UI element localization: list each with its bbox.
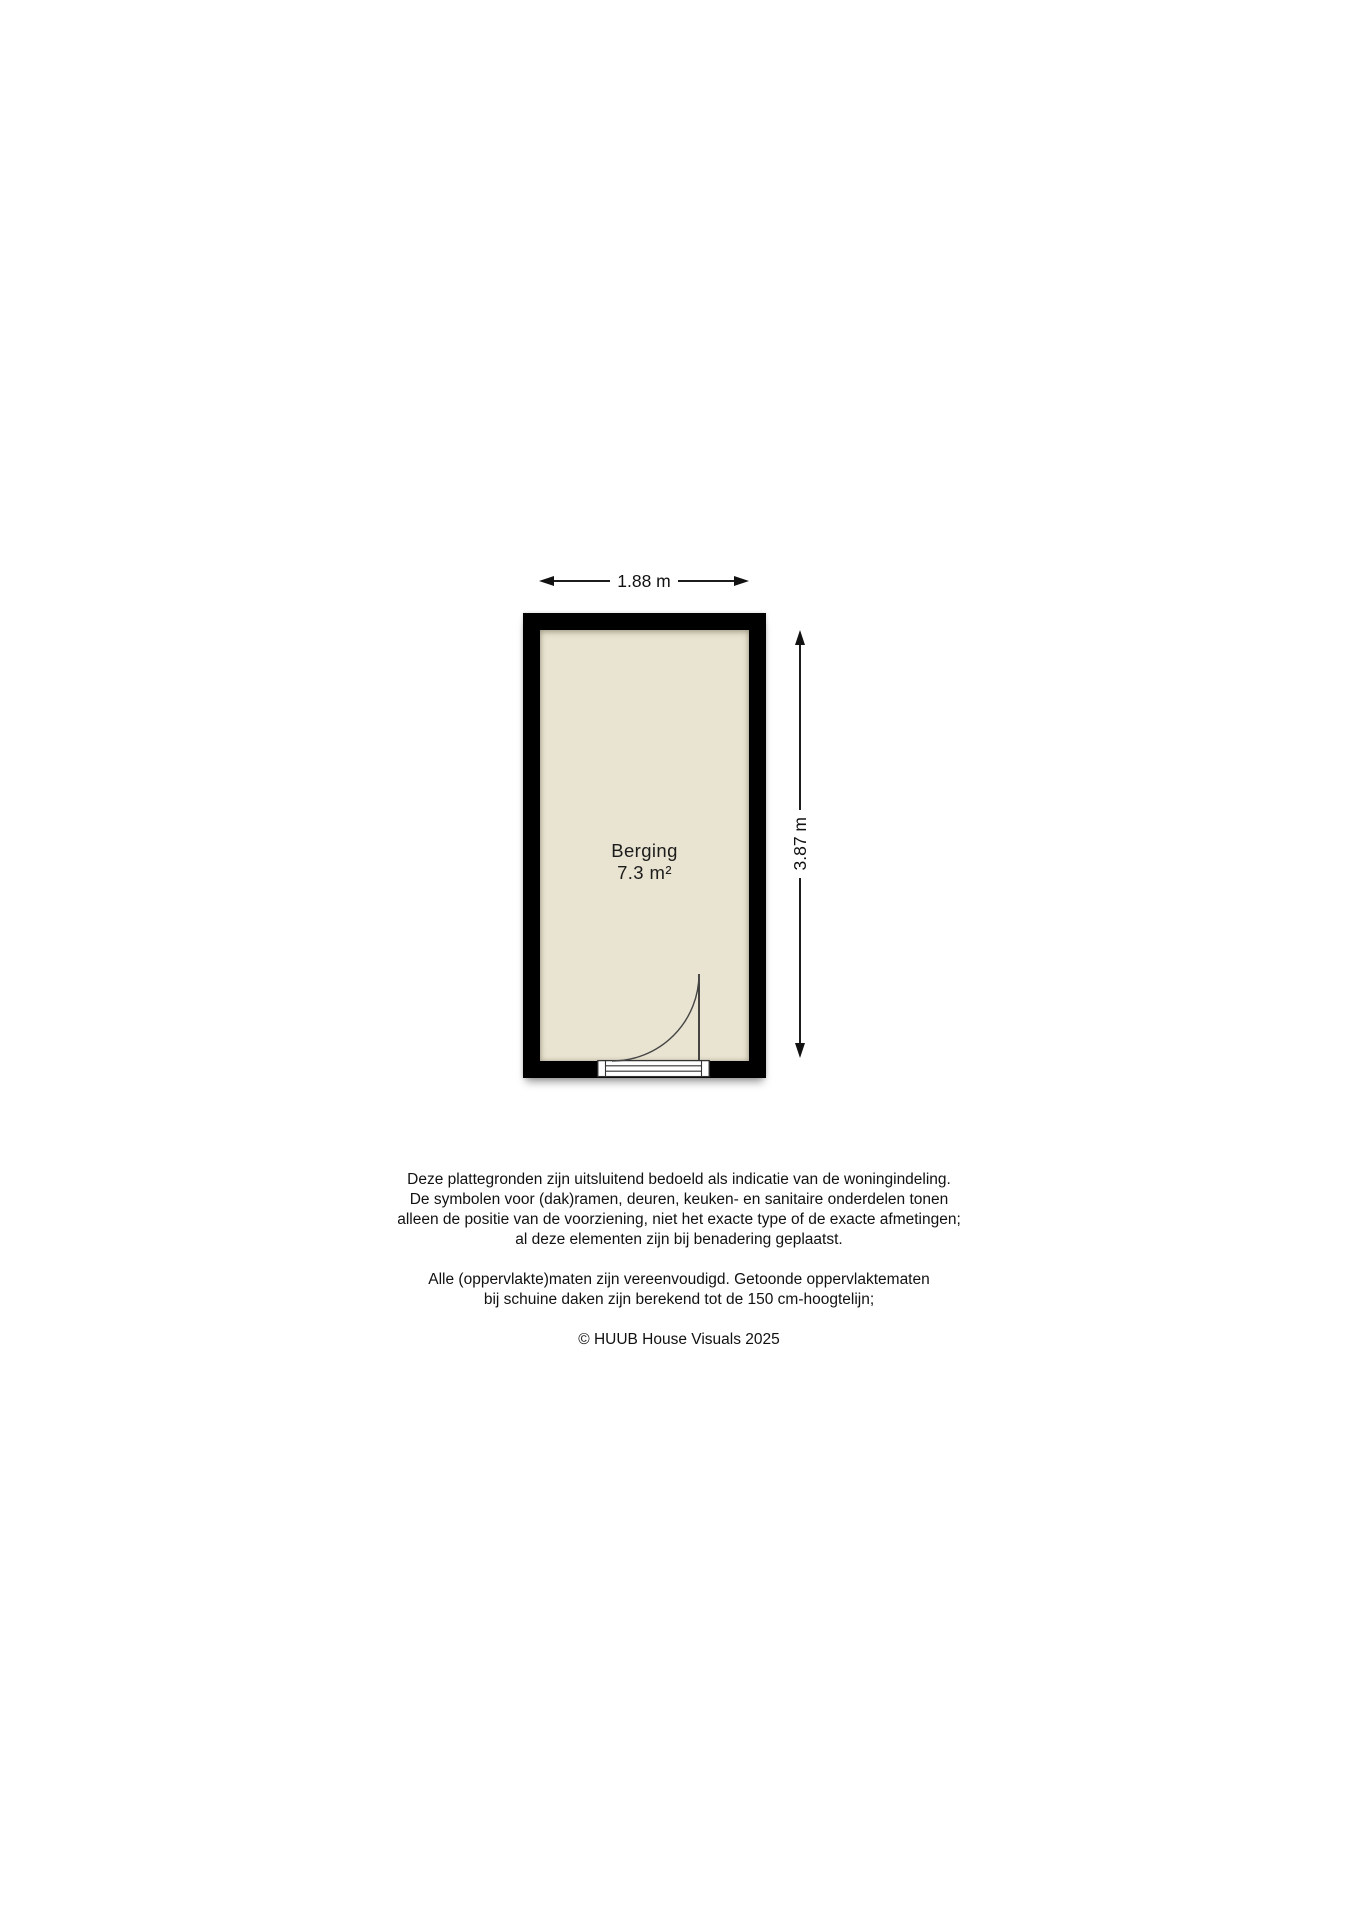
arrow-left-icon (539, 576, 554, 586)
arrow-right-icon (734, 576, 749, 586)
disclaimer-line: bij schuine daken zijn berekend tot de 1… (484, 1291, 874, 1308)
disclaimer-line: De symbolen voor (dak)ramen, deuren, keu… (410, 1191, 949, 1208)
dimension-line (799, 878, 801, 1043)
disclaimer-line: Deze plattegronden zijn uitsluitend bedo… (407, 1171, 951, 1188)
dimension-line (554, 580, 610, 582)
arrow-down-icon (795, 1043, 805, 1058)
height-dimension: 3.87 m (792, 630, 808, 1058)
disclaimer-line: al deze elementen zijn bij benadering ge… (515, 1231, 842, 1248)
arrow-up-icon (795, 630, 805, 645)
width-dimension-label: 1.88 m (617, 571, 671, 592)
disclaimer-paragraph: Deze plattegronden zijn uitsluitend bedo… (0, 1170, 1358, 1250)
height-dimension-label: 3.87 m (790, 817, 811, 871)
dimension-line (678, 580, 734, 582)
room-name: Berging (540, 840, 749, 862)
dimension-line (799, 645, 801, 810)
door-threshold (598, 1061, 709, 1077)
floorplan-room-outline: Berging 7.3 m² (523, 613, 766, 1078)
room-area: 7.3 m² (540, 862, 749, 884)
copyright-notice: © HUUB House Visuals 2025 (0, 1330, 1358, 1350)
door-swing-arc (612, 974, 699, 1061)
room-label: Berging 7.3 m² (540, 840, 749, 884)
door-swing-icon (597, 968, 710, 1078)
disclaimer-block: Deze plattegronden zijn uitsluitend bedo… (0, 1170, 1358, 1370)
disclaimer-line: alleen de positie van de voorziening, ni… (397, 1211, 961, 1228)
disclaimer-line: Alle (oppervlakte)maten zijn vereenvoudi… (428, 1271, 929, 1288)
disclaimer-paragraph: Alle (oppervlakte)maten zijn vereenvoudi… (0, 1270, 1358, 1310)
width-dimension: 1.88 m (539, 570, 749, 592)
